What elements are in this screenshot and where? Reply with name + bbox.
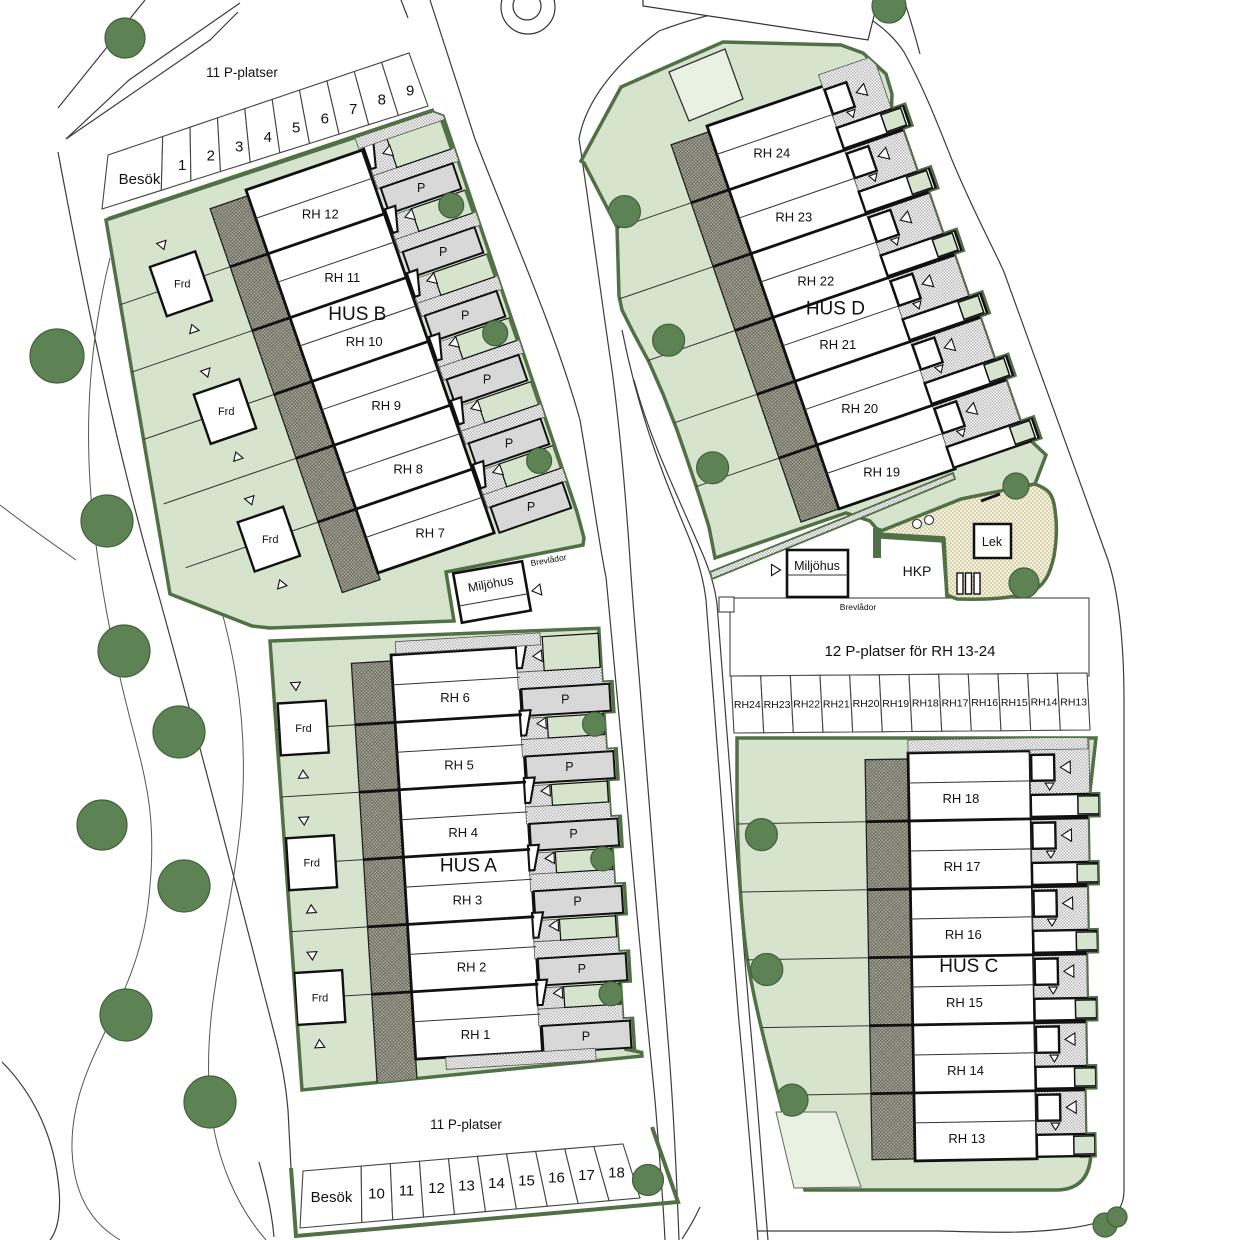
svg-text:9: 9 bbox=[406, 82, 414, 99]
svg-text:Frd: Frd bbox=[174, 279, 191, 291]
svg-text:RH 7: RH 7 bbox=[415, 526, 445, 541]
svg-text:Frd: Frd bbox=[262, 534, 279, 546]
svg-text:RH 8: RH 8 bbox=[393, 462, 423, 477]
svg-text:Brevlådor: Brevlådor bbox=[840, 602, 877, 612]
svg-text:RH18: RH18 bbox=[912, 698, 939, 710]
svg-text:RH20: RH20 bbox=[853, 698, 880, 710]
svg-text:RH 13: RH 13 bbox=[948, 1131, 985, 1146]
svg-text:RH15: RH15 bbox=[1001, 697, 1028, 709]
svg-text:HUS D: HUS D bbox=[806, 299, 865, 320]
svg-text:RH 20: RH 20 bbox=[841, 401, 878, 416]
svg-text:RH 16: RH 16 bbox=[945, 927, 982, 942]
svg-text:RH 18: RH 18 bbox=[942, 791, 979, 806]
svg-text:1: 1 bbox=[178, 157, 186, 174]
svg-text:14: 14 bbox=[488, 1175, 505, 1192]
svg-text:Lek: Lek bbox=[982, 535, 1003, 549]
svg-text:2: 2 bbox=[207, 148, 215, 165]
svg-text:RH 3: RH 3 bbox=[453, 892, 483, 907]
svg-text:RH 23: RH 23 bbox=[775, 209, 812, 224]
svg-text:Frd: Frd bbox=[304, 858, 321, 870]
svg-text:P: P bbox=[483, 373, 491, 387]
svg-text:Frd: Frd bbox=[312, 993, 329, 1005]
svg-text:5: 5 bbox=[292, 120, 300, 137]
svg-text:RH 1: RH 1 bbox=[461, 1027, 491, 1042]
svg-text:RH 22: RH 22 bbox=[797, 273, 834, 288]
svg-text:RH 24: RH 24 bbox=[753, 146, 790, 161]
svg-text:RH 15: RH 15 bbox=[946, 995, 983, 1010]
svg-text:P: P bbox=[417, 181, 425, 195]
svg-text:6: 6 bbox=[321, 110, 329, 127]
svg-text:HUS B: HUS B bbox=[328, 304, 386, 325]
svg-text:RH 10: RH 10 bbox=[346, 334, 383, 349]
svg-text:8: 8 bbox=[378, 92, 386, 109]
svg-text:Besök: Besök bbox=[119, 171, 161, 188]
svg-text:RH 11: RH 11 bbox=[324, 270, 360, 285]
svg-text:Frd: Frd bbox=[218, 406, 235, 418]
svg-text:RH17: RH17 bbox=[942, 697, 969, 709]
svg-text:16: 16 bbox=[548, 1170, 565, 1187]
svg-text:P: P bbox=[505, 436, 513, 450]
svg-text:12: 12 bbox=[428, 1180, 445, 1197]
svg-text:P: P bbox=[439, 245, 447, 259]
svg-text:RH 2: RH 2 bbox=[457, 960, 487, 975]
svg-text:RH 21: RH 21 bbox=[819, 337, 856, 352]
svg-text:13: 13 bbox=[458, 1178, 475, 1195]
svg-text:RH21: RH21 bbox=[823, 698, 850, 710]
svg-text:RH 12: RH 12 bbox=[302, 206, 339, 221]
svg-text:P: P bbox=[461, 309, 469, 323]
svg-text:P: P bbox=[527, 500, 535, 514]
svg-text:P: P bbox=[573, 895, 581, 909]
svg-text:RH 17: RH 17 bbox=[944, 859, 981, 874]
svg-text:P: P bbox=[565, 760, 573, 774]
svg-text:Besök: Besök bbox=[311, 1189, 353, 1206]
svg-text:3: 3 bbox=[235, 138, 243, 155]
svg-text:11 P-platser: 11 P-platser bbox=[206, 65, 278, 80]
svg-text:Frd: Frd bbox=[295, 723, 312, 735]
svg-text:RH14: RH14 bbox=[1031, 697, 1058, 709]
svg-text:12 P-platser för RH 13-24: 12 P-platser för RH 13-24 bbox=[825, 643, 996, 660]
svg-text:RH 19: RH 19 bbox=[863, 465, 900, 480]
svg-text:4: 4 bbox=[264, 129, 272, 146]
svg-text:RH 14: RH 14 bbox=[947, 1063, 984, 1078]
svg-text:15: 15 bbox=[518, 1172, 535, 1189]
svg-text:HUS C: HUS C bbox=[939, 956, 998, 977]
svg-text:17: 17 bbox=[578, 1167, 595, 1184]
svg-text:RH 5: RH 5 bbox=[444, 758, 474, 773]
svg-text:RH22: RH22 bbox=[793, 699, 820, 711]
svg-text:RH 6: RH 6 bbox=[440, 690, 470, 705]
svg-text:18: 18 bbox=[608, 1165, 625, 1182]
svg-text:P: P bbox=[569, 827, 577, 841]
svg-text:P: P bbox=[578, 962, 586, 976]
svg-text:RH 9: RH 9 bbox=[371, 398, 401, 413]
svg-text:RH24: RH24 bbox=[734, 699, 761, 711]
svg-text:RH13: RH13 bbox=[1060, 696, 1087, 708]
svg-text:11 P-platser: 11 P-platser bbox=[430, 1117, 502, 1132]
svg-text:RH23: RH23 bbox=[764, 699, 791, 711]
svg-text:P: P bbox=[561, 693, 569, 707]
svg-text:10: 10 bbox=[368, 1185, 385, 1202]
svg-text:P: P bbox=[582, 1029, 590, 1043]
svg-text:RH19: RH19 bbox=[882, 698, 909, 710]
svg-text:11: 11 bbox=[399, 1183, 415, 1200]
svg-text:HUS A: HUS A bbox=[440, 856, 497, 877]
svg-text:HKP: HKP bbox=[903, 563, 932, 579]
svg-text:Miljöhus: Miljöhus bbox=[794, 559, 840, 573]
svg-text:7: 7 bbox=[349, 101, 357, 118]
svg-text:RH 4: RH 4 bbox=[448, 825, 478, 840]
svg-text:RH16: RH16 bbox=[971, 697, 998, 709]
